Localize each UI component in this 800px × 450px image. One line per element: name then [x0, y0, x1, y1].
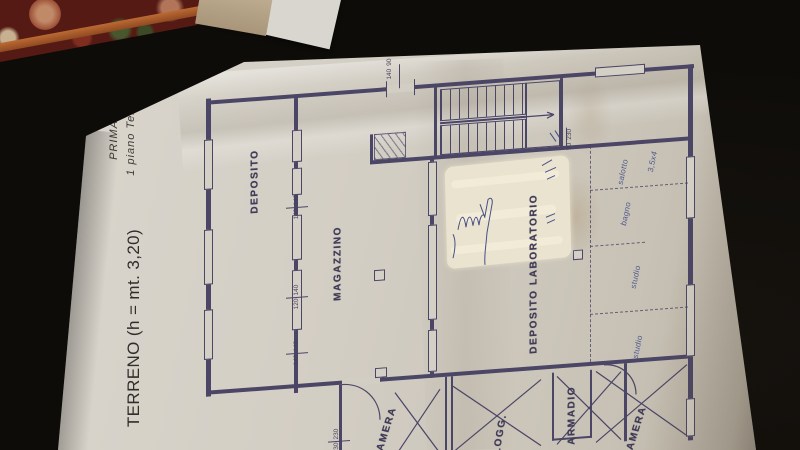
dimension-value: 90 — [566, 142, 574, 150]
floor-plan-drawing: DEPOSITO MAGAZZINO DEPOSITO LABORATORIO … — [190, 5, 710, 450]
dimension-value: 120 — [293, 298, 301, 309]
dimension-label: 120 140 — [293, 280, 301, 315]
dimension-value: 140 — [293, 194, 301, 205]
dimension-label: 140 140 — [293, 336, 301, 371]
dimension-label: 140 140 — [293, 190, 301, 225]
room-label-deposito: DEPOSITO — [250, 151, 261, 214]
room-label-armadio: ARMADIO — [567, 392, 578, 445]
room-label-deposito-laboratorio: DEPOSITO LABORATORIO — [529, 223, 540, 354]
dimension-label: 140 90 — [386, 52, 394, 87]
dimension-tick — [399, 64, 400, 88]
dimension-value: 140 — [293, 208, 301, 219]
photo-of-floor-plan: TERRENO (h = mt. 3,20) PRIMA 1 piano Ter… — [0, 0, 800, 450]
dimension-value: 230 — [333, 442, 341, 450]
dimension-label: 230 230 — [333, 424, 341, 450]
dimension-value: 140 — [293, 284, 301, 295]
ink-scribble — [453, 130, 560, 267]
dimension-value: 140 — [293, 354, 301, 365]
dimension-value: 230 — [566, 129, 574, 140]
dimension-value: 90 — [386, 58, 394, 66]
floor-level-title: TERRENO (h = mt. 3,20) — [124, 194, 144, 450]
dimension-value: 140 — [386, 68, 394, 79]
dimension-value: 140 — [293, 340, 301, 351]
ink-overlay — [190, 5, 710, 450]
room-label-magazzino: MAGAZZINO — [333, 218, 344, 309]
dimension-value: 230 — [333, 428, 341, 439]
dimension-label: 90 230 — [566, 122, 574, 157]
